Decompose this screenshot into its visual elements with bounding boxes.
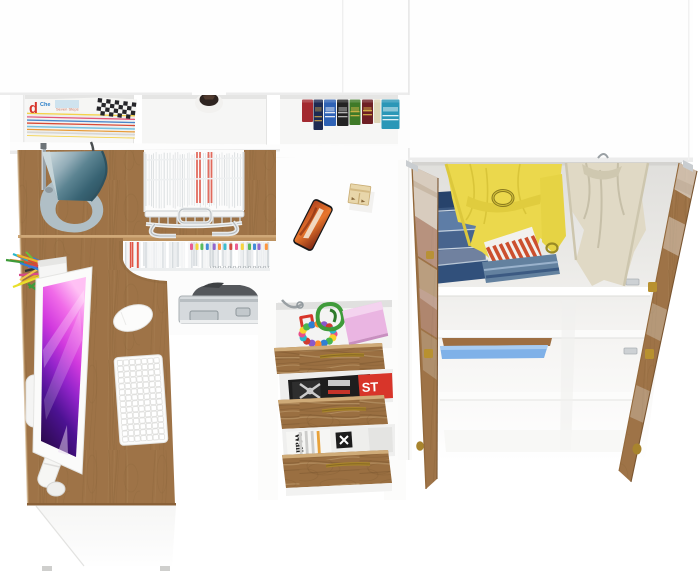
svg-text:Che: Che (40, 102, 50, 108)
svg-text:Seven Steps: Seven Steps (56, 107, 79, 112)
svg-text:d: d (29, 101, 38, 117)
svg-text:Wall: Wall (292, 432, 304, 453)
svg-text:ST: ST (361, 379, 378, 395)
